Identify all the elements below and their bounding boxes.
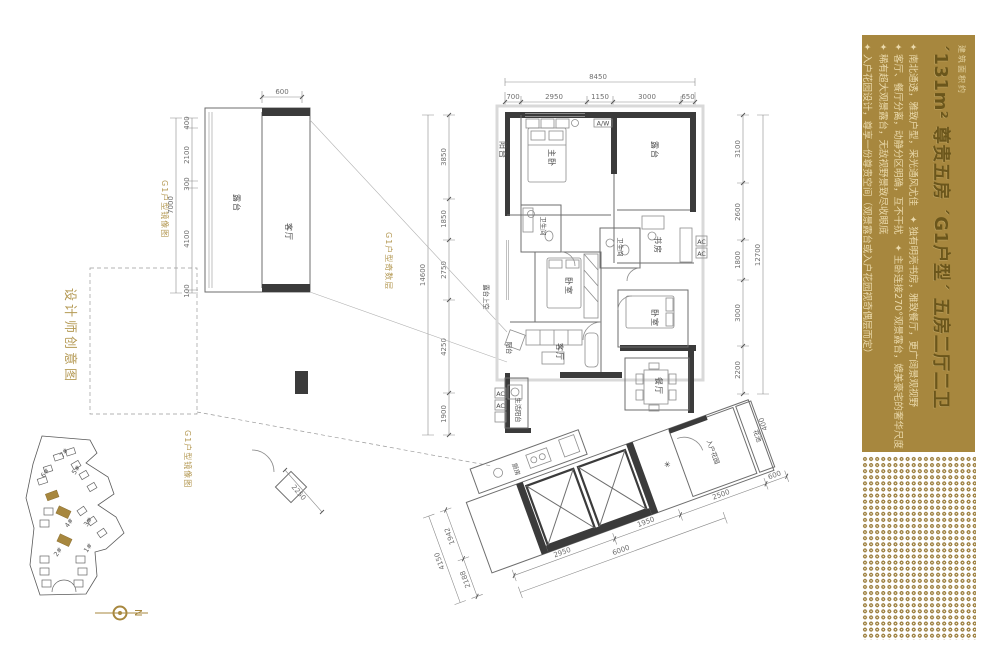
svg-text:1800: 1800 <box>734 251 742 269</box>
svg-text:4100: 4100 <box>183 230 191 248</box>
svg-text:2750: 2750 <box>440 261 448 279</box>
area-eyebrow: 建筑面积约 <box>956 45 967 442</box>
svg-text:2100: 2100 <box>183 146 191 164</box>
designer-caption: 设计师创意图 <box>62 288 78 384</box>
site-plan: 7# 6# 5# 4# 3# 2# 1# N <box>26 436 148 620</box>
svg-text:卫生间: 卫生间 <box>539 217 548 236</box>
svg-text:AC: AC <box>496 391 505 398</box>
gold-dot-grid <box>862 456 976 640</box>
svg-text:3000: 3000 <box>734 304 742 322</box>
svg-text:卧室: 卧室 <box>650 309 660 327</box>
svg-text:7000: 7000 <box>167 196 175 214</box>
svg-text:A/W: A/W <box>597 121 610 128</box>
svg-text:650: 650 <box>681 93 694 101</box>
main-unit: AC AC AC AC 阳台 主卧 露台 A/W 卫生间 书房 卫生间 卧室 卧… <box>482 106 707 433</box>
projection-lines: 2250 <box>90 120 507 514</box>
svg-text:客厅: 客厅 <box>284 223 294 241</box>
svg-text:2200: 2200 <box>734 361 742 379</box>
svg-text:卫生间: 卫生间 <box>616 238 625 257</box>
svg-text:主卧: 主卧 <box>547 149 557 167</box>
svg-text:N: N <box>132 609 143 616</box>
selling-point: ✦ 南北通透，雅致户型，采光通风尤佳 ✦ 独有明亮书房，雅致餐厅，更广阔景观视野 <box>905 43 920 442</box>
unit-label-odd-center: G1户型奇数层 <box>384 232 394 290</box>
svg-text:生活阳台: 生活阳台 <box>514 397 523 422</box>
svg-text:600: 600 <box>767 469 782 481</box>
compass-north-icon: N <box>95 607 148 620</box>
selling-points: ✦ 南北通透，雅致户型，采光通风尤佳 ✦ 独有明亮书房，雅致餐厅，更广阔景观视野… <box>862 43 920 442</box>
svg-text:1150: 1150 <box>591 93 609 101</box>
svg-text:卧室: 卧室 <box>564 277 574 295</box>
svg-text:6000: 6000 <box>611 544 630 558</box>
sub-plan-mirrored-section: 600 露台 客厅 400 2100 300 4100 100 7000 <box>167 88 310 298</box>
svg-text:14600: 14600 <box>419 264 427 286</box>
svg-text:阳台: 阳台 <box>498 141 508 159</box>
svg-text:300: 300 <box>183 177 191 190</box>
selling-point: ✦ 客厅、餐厅分离，动静分区明确，互不干扰 ✦ 主卧连接270°观景露台，媲美豪… <box>890 43 905 442</box>
svg-text:600: 600 <box>275 88 288 96</box>
svg-text:3850: 3850 <box>440 148 448 166</box>
svg-text:阳台: 阳台 <box>505 342 514 355</box>
svg-text:4150: 4150 <box>433 551 447 570</box>
marketing-panel: 建筑面积约 ´131m² 尊贵五房 ´G1户型´ 五房二厅二卫 ✦ 南北通透，雅… <box>862 35 975 452</box>
selling-point: ✦ 入户花园设计，尊享一份尊贵空间（观景露台或入户花园视奇偶层而定） <box>862 43 874 442</box>
svg-text:1942: 1942 <box>443 526 457 545</box>
selling-point: ✦ 稀有超大观景露台，无敌视野景致尽收眼底 <box>874 43 889 442</box>
svg-text:100: 100 <box>183 284 191 297</box>
dim-chain-right: 3100 2600 1800 3000 2200 12700 <box>734 113 769 396</box>
svg-text:客厅: 客厅 <box>555 343 565 361</box>
star-symbol: ✳ <box>663 459 673 470</box>
dim-chain-top: 8450 700 2950 1150 3000 650 <box>503 73 697 106</box>
svg-text:1850: 1850 <box>440 210 448 228</box>
svg-text:厨房: 厨房 <box>510 462 523 477</box>
svg-text:AC: AC <box>697 239 706 246</box>
svg-text:12700: 12700 <box>754 244 762 266</box>
unit-title: ´131m² 尊贵五房 ´G1户型´ 五房二厅二卫 <box>929 43 955 442</box>
svg-text:2500: 2500 <box>711 488 730 502</box>
svg-text:8450: 8450 <box>589 73 607 81</box>
svg-text:1900: 1900 <box>440 405 448 423</box>
entry-core: 厨房 入户花园 花池 ✳ 1942 2188 4150 2950 1950 25… <box>410 368 797 622</box>
svg-text:2950: 2950 <box>545 93 563 101</box>
floor-plan-brochure-page: { "colors":{"accent_gold":"#a7873e","dot… <box>0 0 1000 654</box>
marketing-panel-rotated-text: 建筑面积约 ´131m² 尊贵五房 ´G1户型´ 五房二厅二卫 ✦ 南北通透，雅… <box>862 35 975 452</box>
svg-text:2600: 2600 <box>734 203 742 221</box>
dim-chain-left: 3850 1850 2750 4250 1900 14600 <box>419 113 455 437</box>
svg-text:露台: 露台 <box>232 194 242 212</box>
svg-text:餐厅: 餐厅 <box>654 377 663 395</box>
svg-text:2250: 2250 <box>290 483 308 502</box>
floor-plan-drawing: 设计师创意图 G1户型镜像图 G1户型奇数层 G1户型镜像图 8450 700 … <box>0 0 860 654</box>
svg-text:露台上空: 露台上空 <box>482 284 491 309</box>
svg-text:2188: 2188 <box>459 570 473 589</box>
svg-text:3000: 3000 <box>638 93 656 101</box>
svg-text:露台: 露台 <box>650 141 660 159</box>
svg-text:入户花园: 入户花园 <box>705 438 722 465</box>
svg-text:AC: AC <box>496 403 505 410</box>
svg-text:3100: 3100 <box>734 140 742 158</box>
svg-text:700: 700 <box>506 93 519 101</box>
svg-text:400: 400 <box>183 116 191 129</box>
unit-label-mirror-bottom: G1户型镜像图 <box>183 430 193 488</box>
svg-text:书房: 书房 <box>653 236 663 254</box>
svg-text:AC: AC <box>697 251 706 258</box>
